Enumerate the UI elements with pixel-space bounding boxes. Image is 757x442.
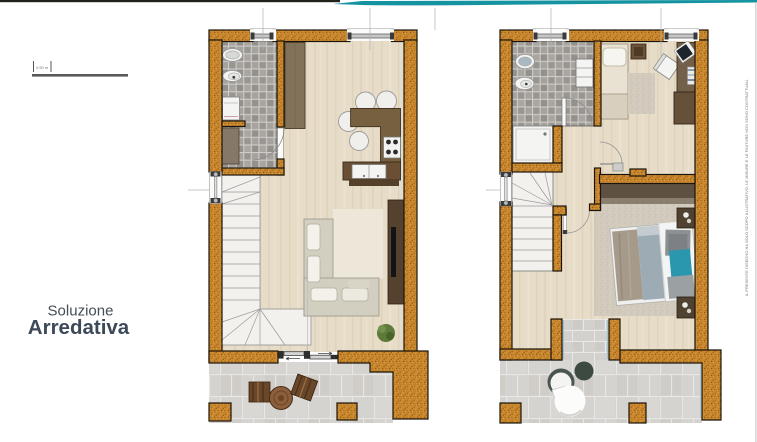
svg-text:0.50 m: 0.50 m — [36, 65, 49, 70]
svg-text:IL PRESENTE DISEGNO HA SOLO SC: IL PRESENTE DISEGNO HA SOLO SCOPO ILLUST… — [744, 78, 749, 296]
svg-text:Arredativa: Arredativa — [28, 316, 130, 339]
